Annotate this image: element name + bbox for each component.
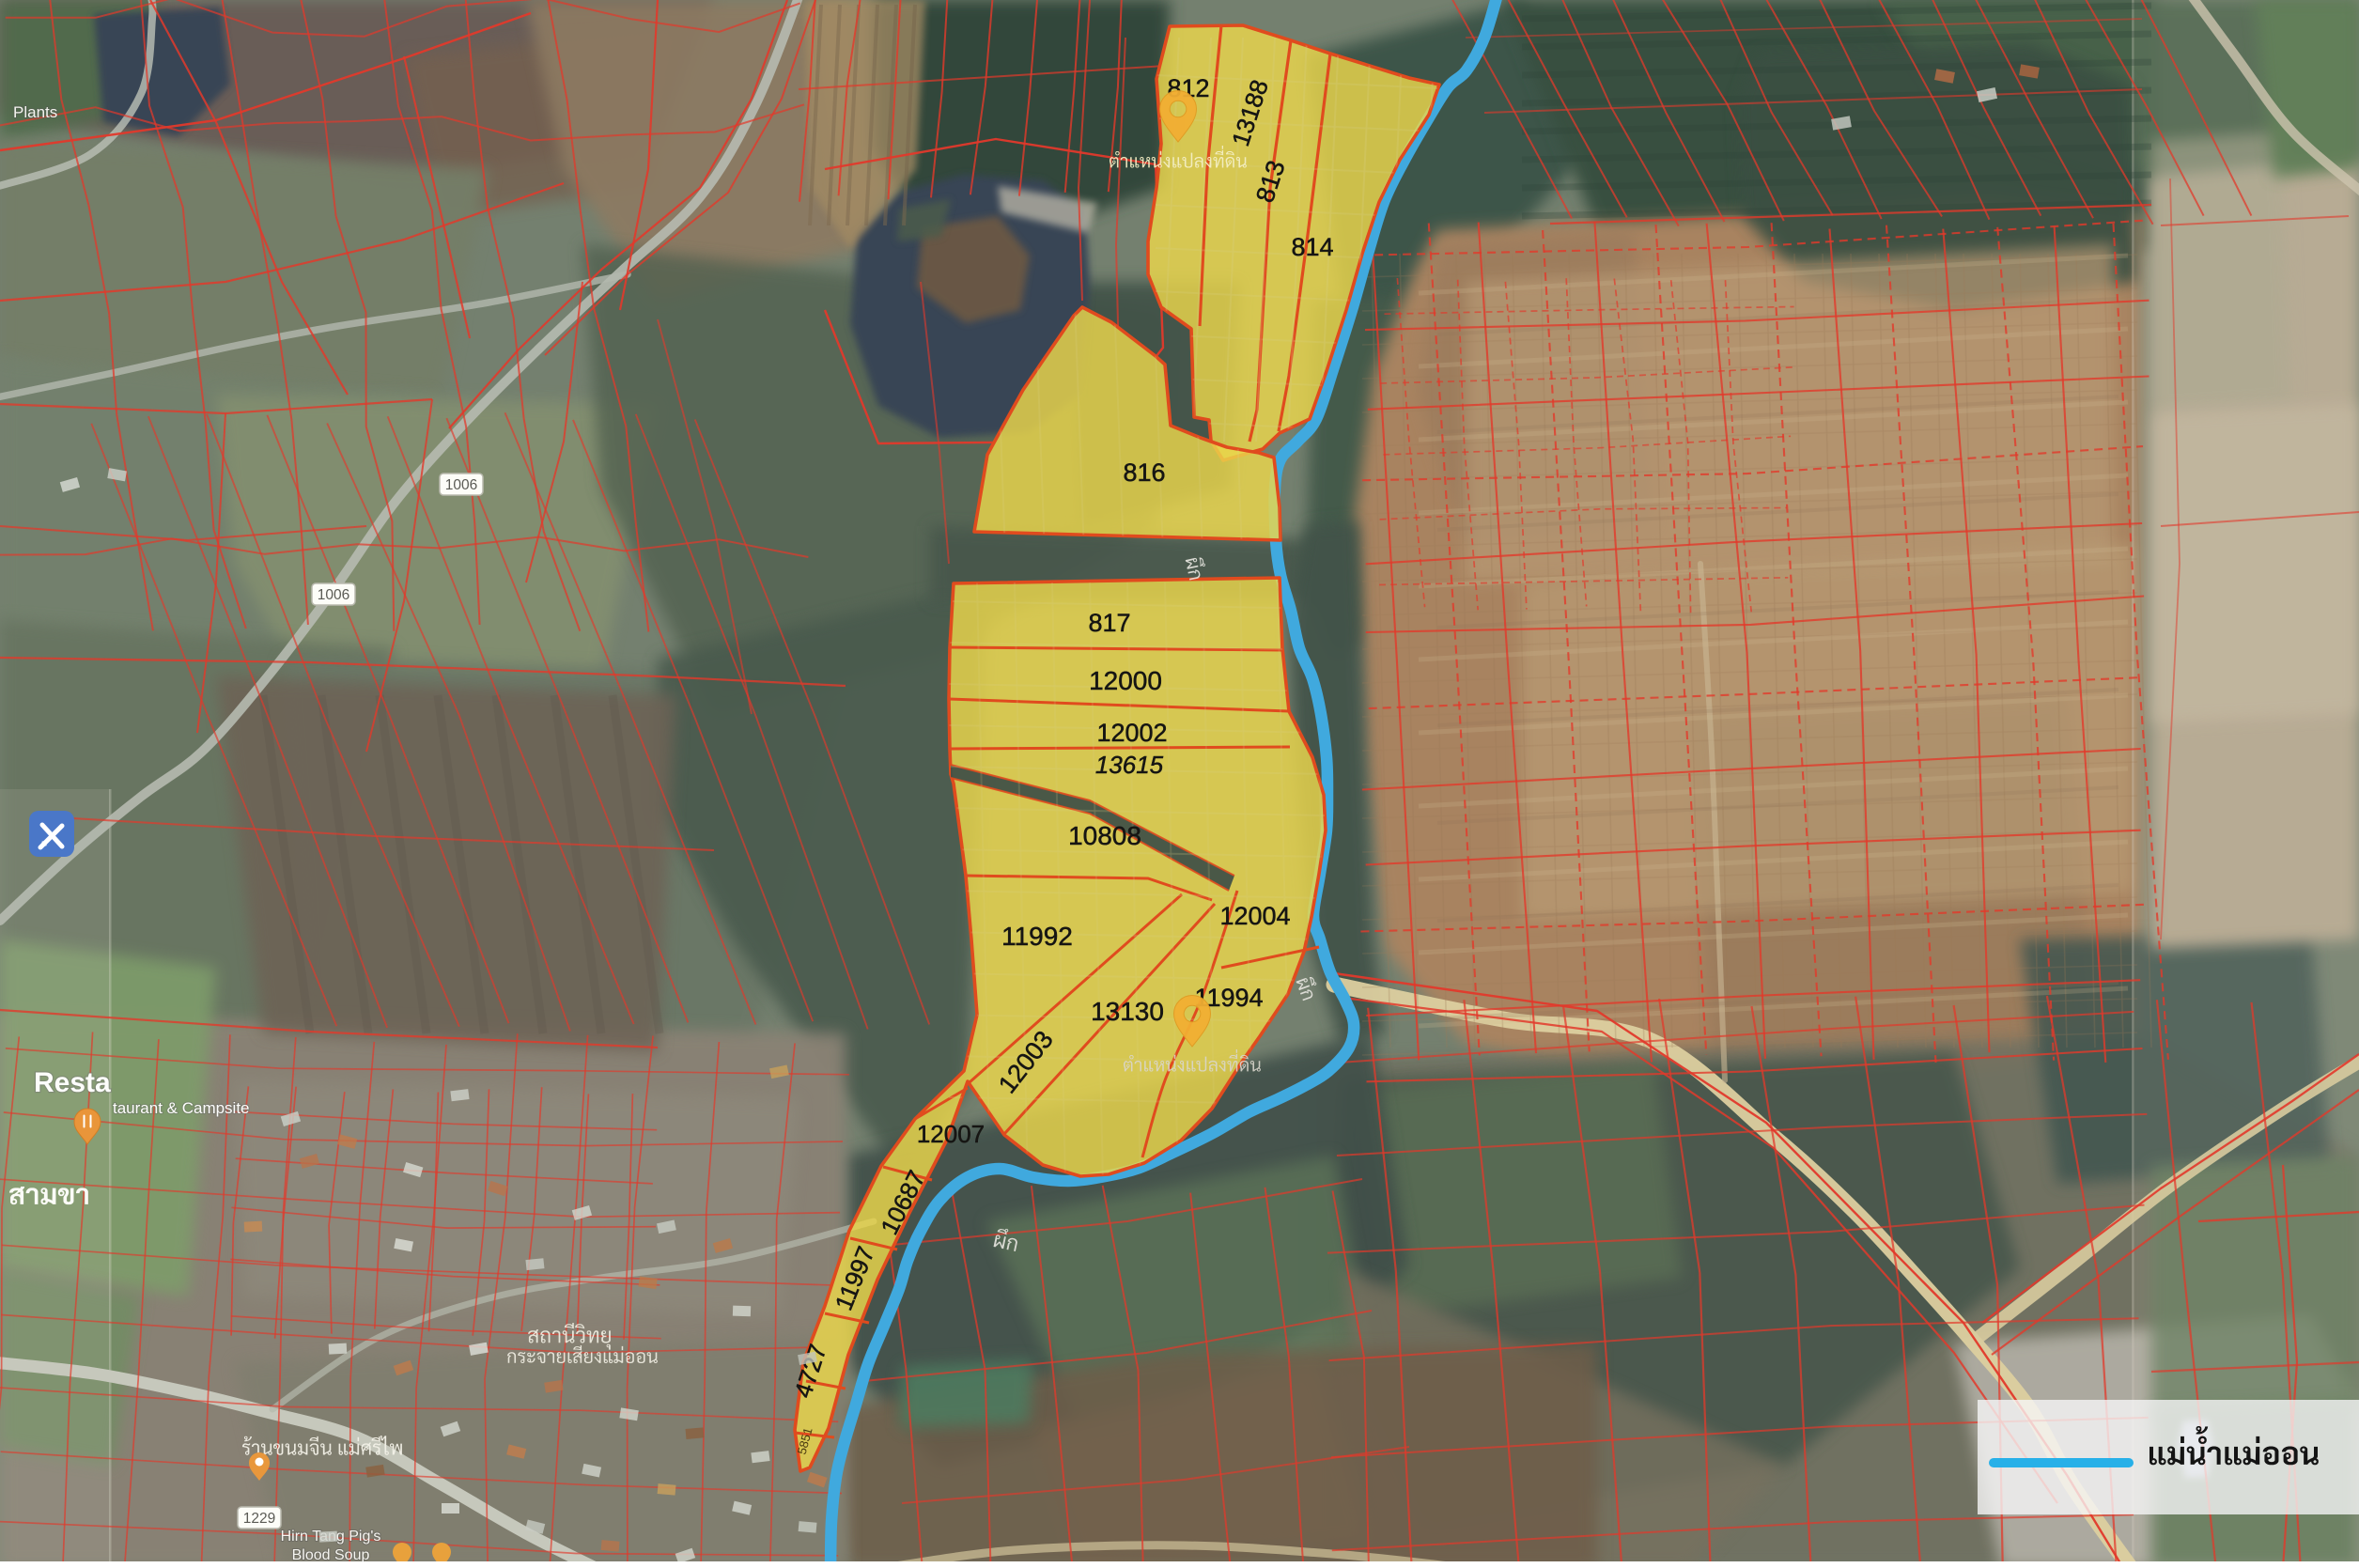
svg-text:12004: 12004 [1219,902,1290,930]
svg-text:1229: 1229 [243,1511,275,1527]
svg-text:13130: 13130 [1091,997,1164,1026]
svg-text:taurant & Campsite: taurant & Campsite [113,1099,250,1117]
svg-text:11992: 11992 [1001,922,1073,951]
svg-text:Resta: Resta [34,1067,111,1098]
svg-text:12000: 12000 [1089,666,1162,695]
svg-text:817: 817 [1088,609,1130,637]
svg-text:12002: 12002 [1096,719,1167,747]
svg-text:1006: 1006 [445,477,477,493]
svg-text:13615: 13615 [1095,751,1164,779]
svg-text:Plants: Plants [13,103,57,121]
svg-text:10808: 10808 [1068,821,1141,850]
svg-text:816: 816 [1123,458,1165,487]
svg-text:1006: 1006 [318,587,349,603]
svg-text:12007: 12007 [917,1120,985,1148]
svg-text:814: 814 [1291,233,1333,261]
svg-text:Blood Soup: Blood Soup [292,1547,370,1563]
